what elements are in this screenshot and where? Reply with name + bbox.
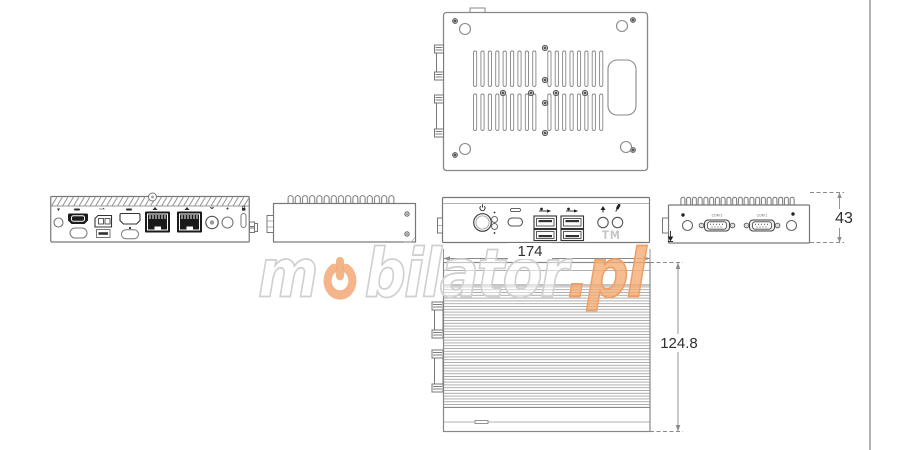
side-tab bbox=[663, 218, 669, 233]
dimension-width-label: 174 bbox=[508, 243, 552, 259]
rear-panel-view bbox=[50, 192, 262, 244]
watermark-text-pre: m bbox=[258, 240, 316, 307]
antenna2-icon bbox=[227, 208, 229, 210]
vent-slots-row2-left bbox=[474, 94, 536, 131]
vent-slots-row1-left bbox=[474, 51, 536, 87]
com-connector-top-1 bbox=[435, 45, 444, 80]
com-connector-side-2 bbox=[432, 350, 443, 392]
bottom-slot bbox=[475, 421, 488, 424]
top-view-fins bbox=[425, 244, 687, 440]
com-connector-top-2 bbox=[435, 95, 444, 137]
bottom-view bbox=[428, 3, 654, 175]
heatsink-fins bbox=[680, 195, 795, 205]
page-divider-line bbox=[869, 0, 871, 450]
antenna-hole-right bbox=[787, 221, 797, 231]
com-connector-side-1 bbox=[432, 302, 443, 338]
panel-screw-left bbox=[681, 213, 684, 216]
antenna-hole-left bbox=[54, 218, 63, 227]
panel-screw-right bbox=[791, 212, 794, 215]
displayport-port bbox=[95, 216, 112, 238]
dimension-depth-label: 43 bbox=[830, 209, 858, 228]
side-tab bbox=[438, 218, 443, 233]
top-screw bbox=[149, 193, 157, 201]
power-jack bbox=[206, 216, 218, 228]
hdmi-icon bbox=[74, 209, 80, 211]
antenna-hole-left bbox=[683, 221, 693, 231]
heatsink-fins bbox=[287, 195, 395, 205]
side-tab bbox=[267, 216, 274, 233]
power-symbol-icon bbox=[319, 246, 361, 313]
side-tab bbox=[250, 222, 258, 233]
side-view bbox=[266, 190, 422, 244]
enclosure-outline bbox=[274, 204, 416, 243]
lan-port-1 bbox=[145, 212, 170, 233]
power-button bbox=[474, 214, 492, 232]
technical-drawing-page: COM 2 COM 1 bbox=[0, 0, 900, 450]
lan-port-2 bbox=[177, 212, 202, 233]
access-cutout bbox=[608, 60, 636, 115]
com1-label: COM 1 bbox=[757, 214, 768, 218]
dimension-height-label: 124.8 bbox=[651, 334, 707, 352]
hdmi2-icon bbox=[126, 209, 132, 211]
antenna-hole-right bbox=[222, 217, 233, 228]
front-panel-view bbox=[437, 195, 655, 245]
com2-label: COM 2 bbox=[712, 214, 723, 218]
heatsink-fin-lines bbox=[444, 286, 650, 408]
sim-slot bbox=[241, 214, 246, 228]
